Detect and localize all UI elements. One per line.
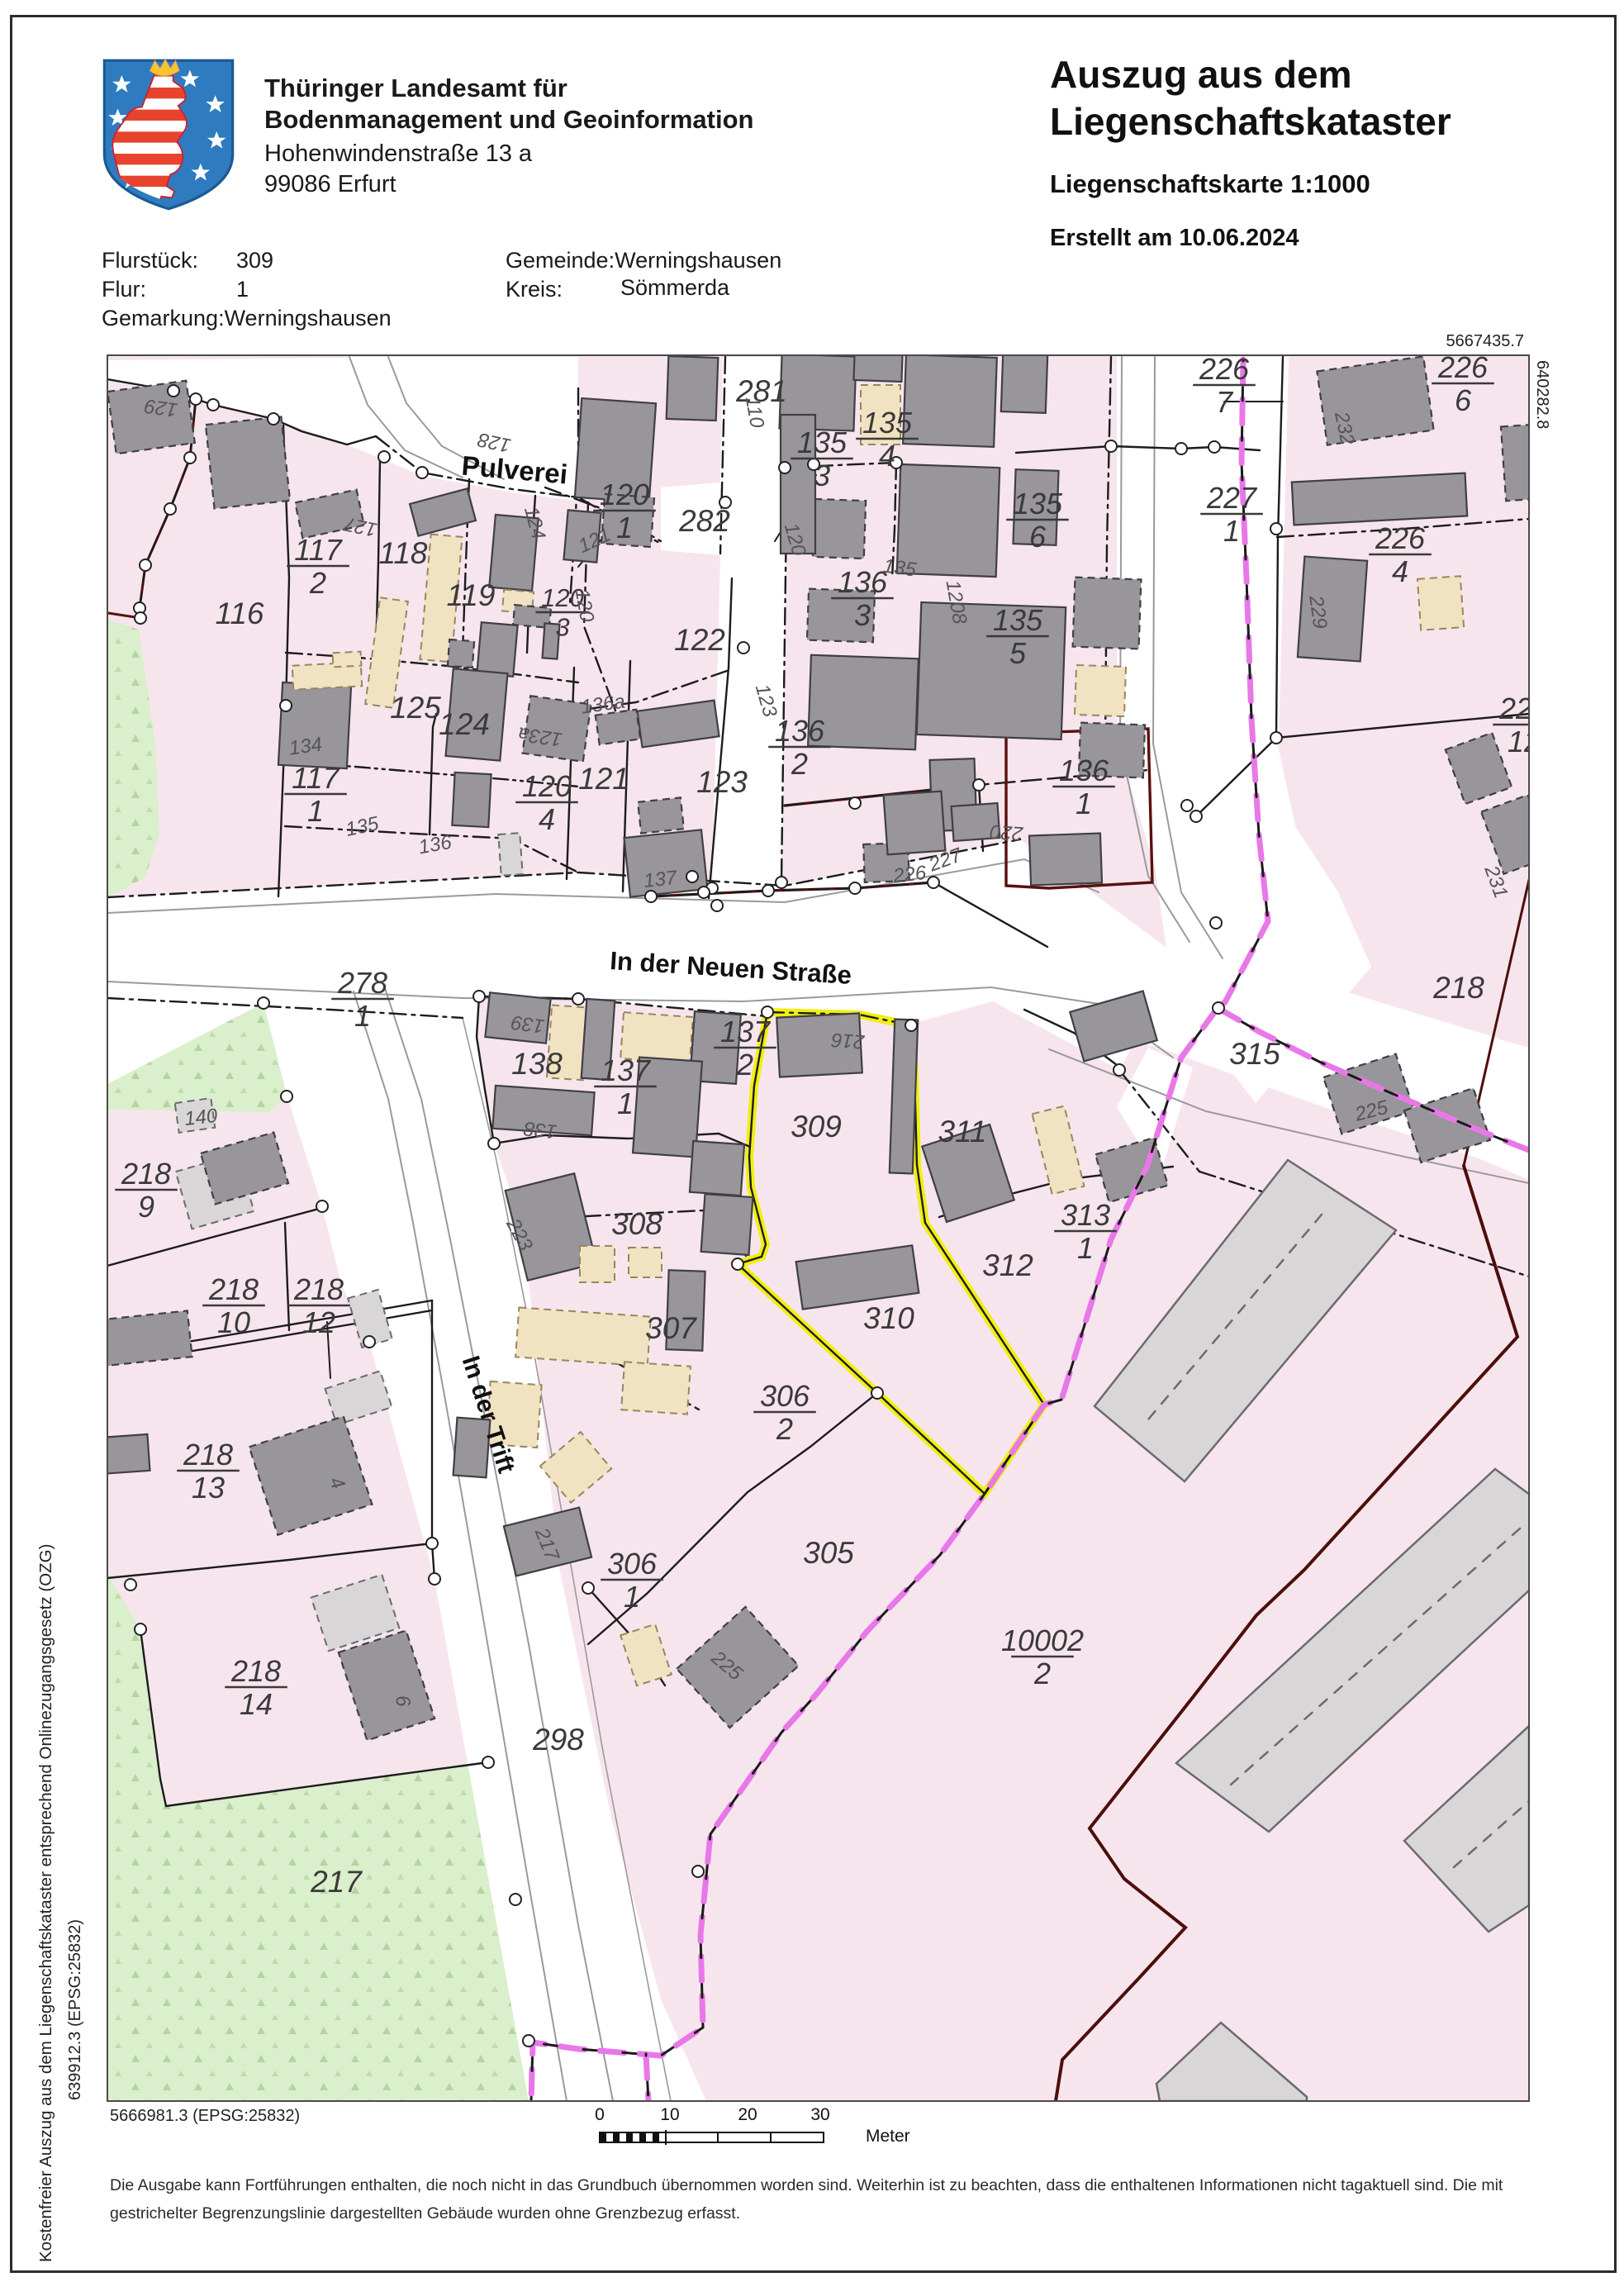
svg-text:2: 2	[791, 747, 808, 781]
svg-text:218: 218	[208, 1272, 259, 1306]
svg-text:138: 138	[522, 1117, 558, 1143]
svg-text:310: 310	[863, 1301, 914, 1335]
svg-text:118: 118	[379, 536, 428, 570]
svg-text:117: 117	[294, 533, 343, 567]
svg-text:226: 226	[1199, 352, 1250, 386]
svg-text:30: 30	[810, 2105, 829, 2124]
svg-text:313: 313	[1061, 1198, 1110, 1232]
svg-text:220: 220	[989, 820, 1024, 845]
svg-text:218: 218	[230, 1654, 281, 1688]
svg-text:135: 135	[1013, 487, 1063, 521]
svg-text:218: 218	[183, 1438, 233, 1471]
svg-text:6: 6	[1455, 383, 1472, 417]
svg-text:124: 124	[439, 707, 490, 741]
svg-text:3: 3	[854, 598, 871, 632]
svg-text:306: 306	[760, 1379, 810, 1413]
svg-text:125: 125	[390, 691, 441, 725]
svg-text:4: 4	[539, 802, 555, 836]
svg-text:1: 1	[617, 1086, 634, 1120]
svg-text:306: 306	[607, 1547, 658, 1581]
svg-text:218: 218	[121, 1157, 171, 1191]
svg-text:218: 218	[293, 1272, 344, 1306]
svg-text:10: 10	[217, 1305, 250, 1339]
svg-text:119: 119	[447, 578, 496, 612]
svg-text:137: 137	[643, 867, 679, 892]
svg-text:1: 1	[624, 1580, 640, 1614]
svg-text:129: 129	[143, 394, 178, 421]
svg-text:123: 123	[696, 765, 748, 799]
svg-text:135: 135	[797, 425, 848, 459]
svg-text:121: 121	[578, 762, 629, 796]
svg-text:1: 1	[354, 999, 371, 1033]
svg-text:229: 229	[1304, 593, 1331, 630]
svg-text:0: 0	[595, 2105, 605, 2124]
svg-text:122: 122	[674, 623, 725, 657]
svg-text:12: 12	[302, 1305, 335, 1339]
svg-text:10002: 10002	[1001, 1624, 1084, 1657]
svg-text:14: 14	[240, 1687, 273, 1721]
svg-text:12: 12	[1508, 725, 1541, 758]
svg-text:116: 116	[216, 597, 264, 630]
svg-text:216: 216	[830, 1029, 866, 1053]
svg-text:1: 1	[307, 794, 324, 828]
svg-text:138: 138	[511, 1047, 563, 1081]
svg-text:298: 298	[532, 1723, 584, 1757]
svg-text:307: 307	[645, 1311, 697, 1345]
svg-text:315: 315	[1229, 1037, 1280, 1071]
svg-text:2: 2	[309, 566, 326, 600]
svg-text:309: 309	[791, 1110, 842, 1143]
svg-text:140: 140	[183, 1105, 219, 1130]
svg-text:217: 217	[310, 1865, 363, 1899]
svg-text:2: 2	[736, 1048, 753, 1082]
svg-text:226: 226	[891, 862, 928, 887]
svg-text:135: 135	[881, 554, 918, 581]
svg-text:278: 278	[337, 966, 387, 1000]
svg-text:224: 224	[1498, 692, 1549, 725]
svg-text:2: 2	[776, 1412, 793, 1446]
svg-text:4: 4	[1392, 554, 1408, 588]
svg-text:3: 3	[814, 459, 830, 492]
svg-text:137: 137	[601, 1053, 652, 1087]
svg-text:227: 227	[1206, 481, 1258, 515]
svg-text:1: 1	[616, 511, 633, 544]
svg-text:1: 1	[1223, 514, 1240, 548]
svg-text:2: 2	[1033, 1657, 1051, 1690]
svg-text:226: 226	[1375, 521, 1426, 555]
svg-text:10: 10	[660, 2105, 679, 2124]
svg-text:4: 4	[879, 439, 895, 473]
svg-text:20: 20	[738, 2105, 757, 2124]
svg-text:282: 282	[678, 504, 730, 538]
svg-text:5: 5	[1009, 636, 1027, 670]
svg-text:218: 218	[1432, 971, 1484, 1005]
svg-text:139: 139	[510, 1010, 545, 1037]
svg-text:7: 7	[1216, 385, 1234, 419]
svg-text:120: 120	[522, 769, 572, 803]
svg-text:308: 308	[611, 1207, 662, 1241]
svg-text:120: 120	[600, 478, 649, 511]
svg-text:137: 137	[720, 1015, 772, 1048]
svg-text:134: 134	[287, 733, 323, 759]
svg-text:6: 6	[1029, 520, 1047, 554]
svg-text:135: 135	[993, 603, 1043, 637]
svg-text:1: 1	[1077, 1231, 1094, 1265]
svg-text:305: 305	[803, 1536, 854, 1570]
svg-text:136: 136	[838, 565, 888, 599]
svg-text:1: 1	[1076, 787, 1092, 820]
svg-text:3: 3	[555, 613, 569, 642]
svg-text:13: 13	[192, 1471, 225, 1505]
svg-text:312: 312	[982, 1248, 1033, 1282]
svg-text:117: 117	[292, 761, 340, 795]
svg-text:311: 311	[938, 1115, 987, 1148]
svg-text:9: 9	[138, 1190, 154, 1224]
svg-text:Meter: Meter	[866, 2127, 910, 2146]
svg-text:135: 135	[862, 406, 913, 440]
svg-text:136: 136	[775, 714, 825, 748]
svg-text:136: 136	[1059, 754, 1109, 787]
